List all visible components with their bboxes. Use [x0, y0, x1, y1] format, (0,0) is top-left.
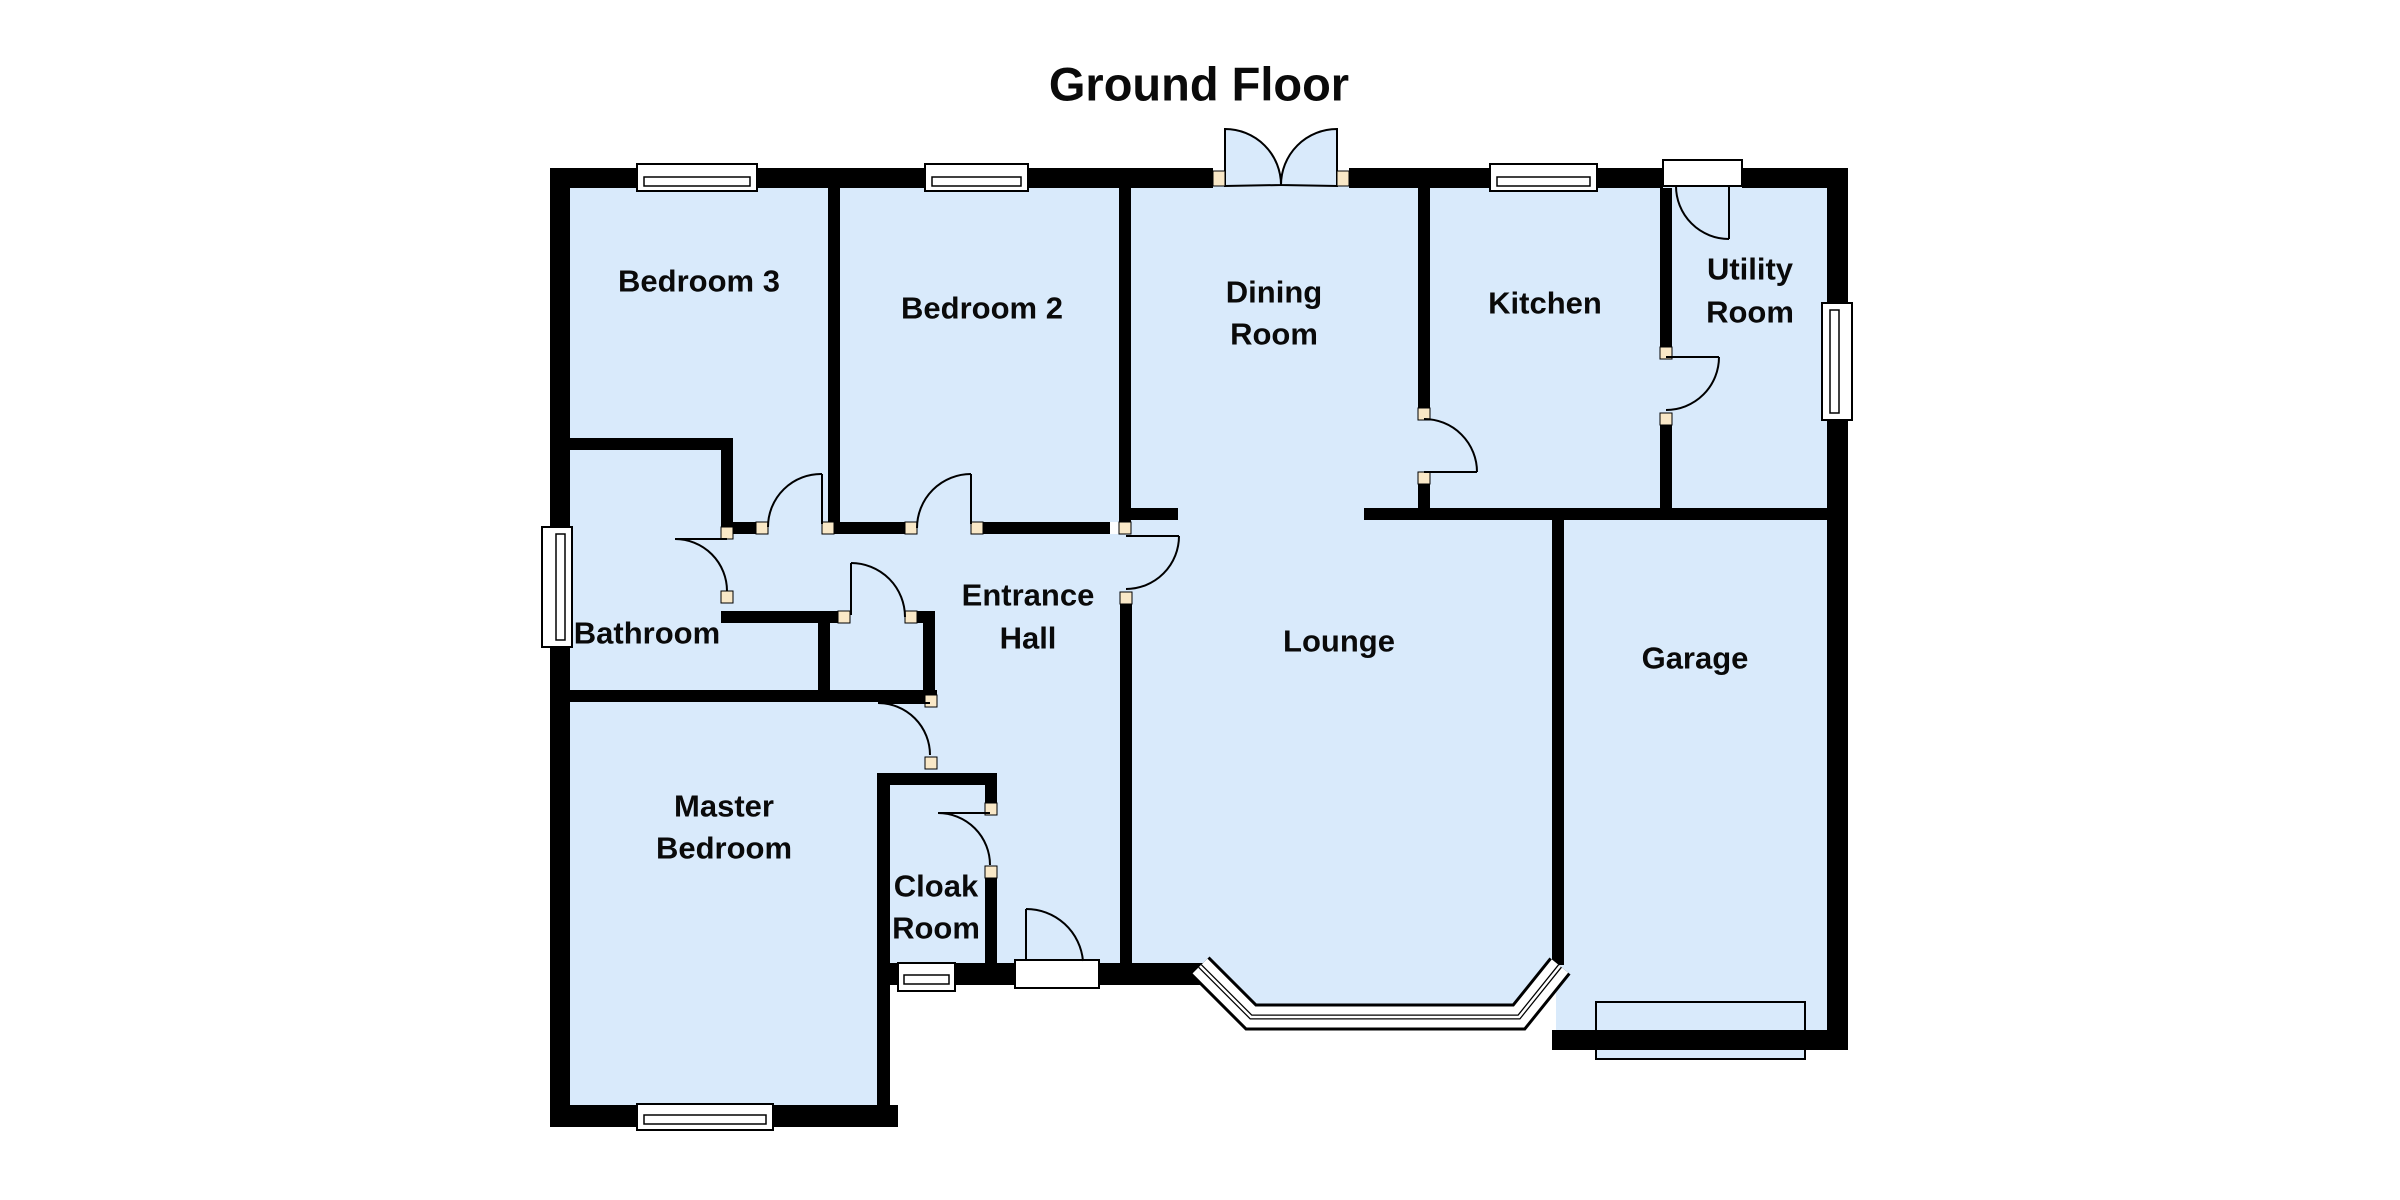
- door-hinge: [1213, 171, 1225, 186]
- door-hinge: [1119, 522, 1131, 534]
- window-cloak: [898, 963, 955, 991]
- wall-east: [1827, 168, 1848, 1050]
- window-bathroom: [542, 527, 572, 647]
- door-hinge: [985, 866, 997, 878]
- utility-door-frame: [1663, 160, 1742, 186]
- wall-cloak-east-lower: [985, 878, 997, 963]
- door-hinge: [925, 757, 937, 769]
- room-label-bedroom2: Bedroom 2: [901, 291, 1063, 326]
- door-hinge: [721, 591, 733, 603]
- door-hinge: [925, 695, 937, 707]
- window-bedroom2: [925, 164, 1028, 191]
- floor-plan-page: Ground Floor Bedroom 3 Bedroom 2 Dining …: [0, 0, 2400, 1200]
- window-utility: [1822, 303, 1852, 420]
- wall-master-north: [552, 690, 937, 702]
- floor-plan-drawing: Ground Floor Bedroom 3 Bedroom 2 Dining …: [0, 0, 2400, 1200]
- room-label-master-2: Bedroom: [656, 831, 792, 866]
- wall-utility-west-upper: [1660, 188, 1672, 347]
- wall-garage-west: [1552, 520, 1564, 965]
- french-door-left-leaf: [1225, 129, 1281, 186]
- window-bedroom3: [637, 164, 757, 191]
- window-master: [637, 1104, 773, 1130]
- door-hinge: [721, 527, 733, 539]
- wall-lounge-south: [1097, 963, 1203, 985]
- wall-cloak-north: [889, 773, 997, 785]
- room-label-bedroom3: Bedroom 3: [618, 264, 780, 299]
- wall-garage-south: [1552, 1030, 1848, 1050]
- door-hinge: [905, 522, 917, 534]
- room-label-lounge: Lounge: [1283, 624, 1395, 659]
- room-label-master-1: Master: [674, 789, 774, 824]
- door-hinge: [905, 611, 917, 623]
- french-door-right-leaf: [1281, 129, 1337, 186]
- room-label-hall-2: Hall: [1000, 621, 1057, 656]
- door-hinge: [1660, 413, 1672, 425]
- wall-kitchen-west-lower: [1418, 484, 1430, 508]
- room-label-garage: Garage: [1642, 641, 1749, 676]
- wall-gap: [1110, 522, 1119, 534]
- door-hinge: [1337, 171, 1349, 186]
- wall-kitchen-west-upper: [1418, 188, 1430, 408]
- wall-hall-north-3: [983, 522, 1110, 534]
- room-label-utility-1: Utility: [1707, 252, 1794, 287]
- door-hinge: [971, 522, 983, 534]
- wall-dining-west: [1119, 188, 1131, 522]
- window-kitchen: [1490, 164, 1597, 191]
- wall-cupboard-east: [923, 611, 935, 702]
- wall-master-east: [877, 773, 890, 1127]
- front-door-frame: [1015, 960, 1099, 988]
- wall-cupboard-north-west: [721, 611, 838, 623]
- room-label-utility-2: Room: [1706, 295, 1794, 330]
- door-hinge: [838, 611, 850, 623]
- room-label-dining-1: Dining: [1226, 275, 1322, 310]
- wall-bathroom-east: [721, 450, 733, 527]
- room-label-cloak-1: Cloak: [894, 869, 979, 904]
- door-hinge: [1418, 472, 1430, 484]
- room-label-dining-2: Room: [1230, 317, 1318, 352]
- wall-hall-north-2: [834, 522, 905, 534]
- wall-cloak-east-upper: [985, 785, 997, 803]
- wall-hall-east: [1120, 604, 1132, 963]
- door-hinge: [1120, 592, 1132, 604]
- wall-cupboard-west: [818, 623, 830, 690]
- door-hinge: [822, 522, 834, 534]
- door-hinge: [756, 522, 768, 534]
- wall-bedroom-divider: [828, 188, 840, 522]
- room-label-hall-1: Entrance: [962, 578, 1095, 613]
- wall-bathroom-north: [570, 438, 733, 450]
- wall-utility-west-lower: [1660, 425, 1672, 508]
- room-label-cloak-2: Room: [892, 911, 980, 946]
- wall-dining-south-stub: [1131, 508, 1178, 520]
- wall-kitchen-south: [1364, 508, 1827, 520]
- room-label-bathroom: Bathroom: [574, 616, 720, 651]
- plan-title: Ground Floor: [1049, 58, 1349, 111]
- room-label-kitchen: Kitchen: [1488, 286, 1602, 321]
- bay-floor: [1203, 958, 1560, 1010]
